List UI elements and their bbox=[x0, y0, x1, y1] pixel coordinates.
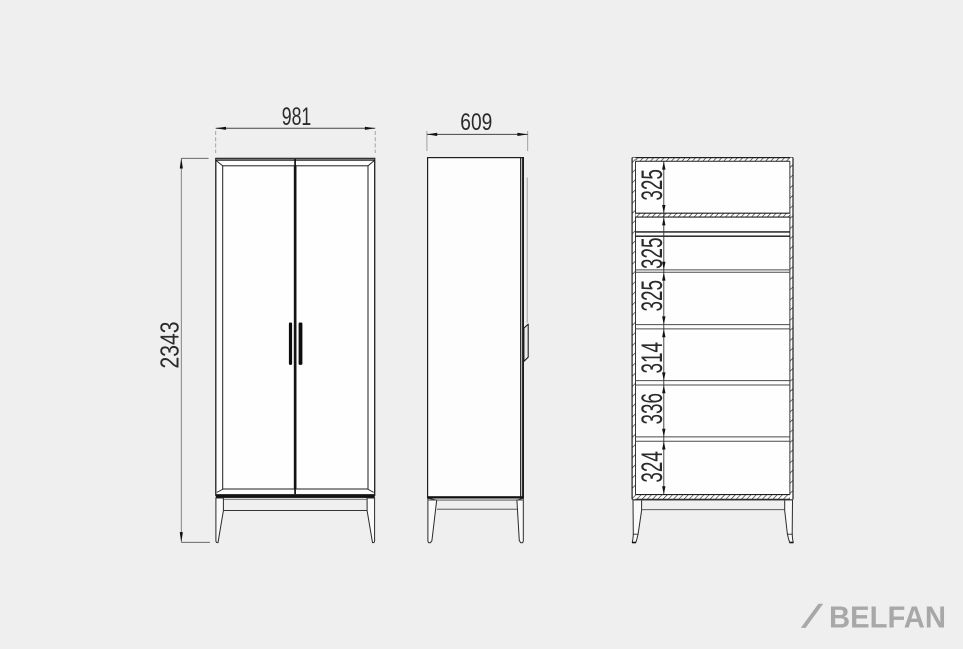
svg-text:325: 325 bbox=[636, 237, 669, 269]
svg-text:981: 981 bbox=[282, 103, 312, 131]
svg-text:325: 325 bbox=[636, 169, 669, 201]
svg-text:BELFAN: BELFAN bbox=[829, 600, 946, 635]
svg-text:336: 336 bbox=[636, 393, 669, 425]
svg-text:314: 314 bbox=[636, 342, 669, 374]
svg-text:325: 325 bbox=[636, 280, 669, 312]
svg-text:324: 324 bbox=[636, 451, 669, 483]
svg-text:2343: 2343 bbox=[154, 322, 184, 369]
svg-text:609: 609 bbox=[460, 109, 492, 136]
